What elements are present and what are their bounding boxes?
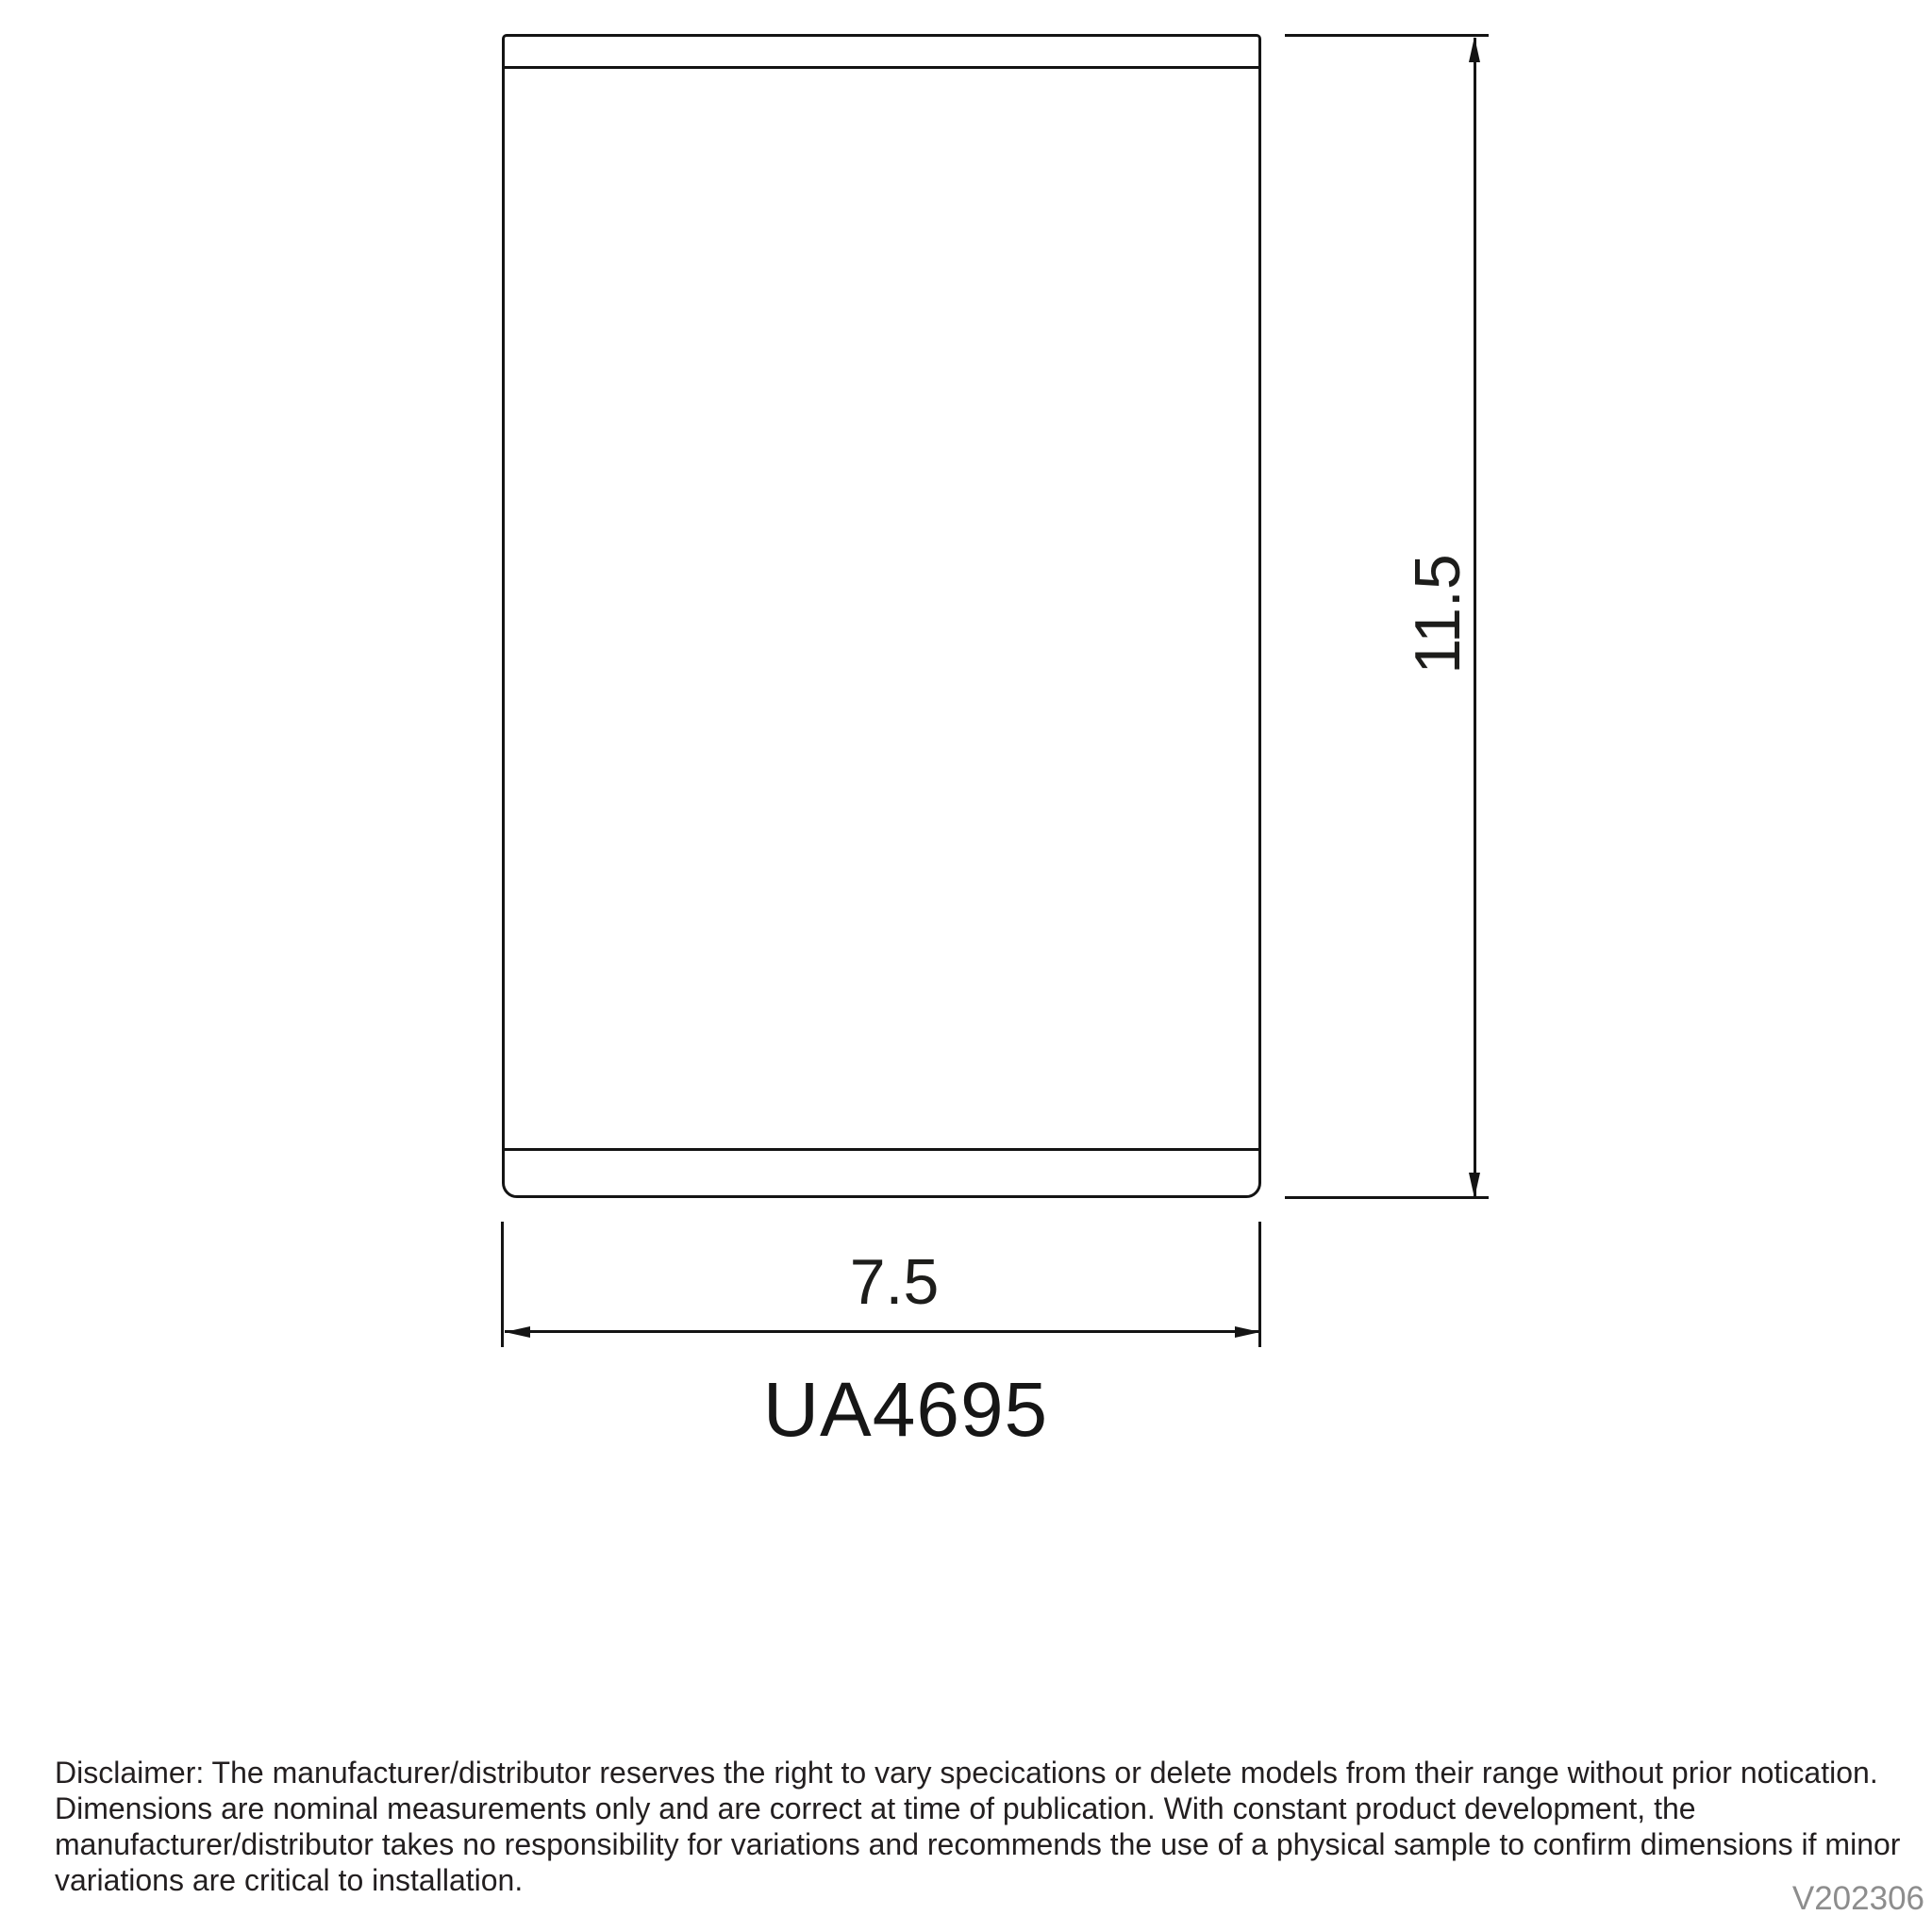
spec-sheet-page: 11.5 7.5 UA4695 Orıel LIGHTING Disclaime… (0, 0, 1932, 1932)
height-extension-line-top (1285, 34, 1489, 37)
product-outline-rect (502, 34, 1261, 1198)
disclaimer-line: variations are critical to installation. (55, 1862, 1900, 1898)
bottom-band-line (505, 1148, 1258, 1151)
product-code: UA4695 (763, 1366, 1048, 1455)
width-dimension-label: 7.5 (850, 1245, 940, 1319)
arrow-right-icon (1235, 1326, 1260, 1338)
disclaimer-line: Disclaimer: The manufacturer/distributor… (55, 1755, 1900, 1790)
disclaimer-line: manufacturer/distributor takes no respon… (55, 1826, 1900, 1862)
version-label: V202306 (1698, 1880, 1924, 1918)
top-band-line (505, 66, 1258, 69)
arrow-up-icon (1469, 37, 1480, 62)
height-extension-line-bottom (1285, 1196, 1489, 1199)
arrow-left-icon (505, 1326, 530, 1338)
oriel-logo: Orıel LIGHTING (0, 1509, 434, 1726)
height-dimension-label: 11.5 (1401, 554, 1474, 674)
disclaimer-line: Dimensions are nominal measurements only… (55, 1790, 1900, 1826)
width-dimension-line (505, 1330, 1260, 1333)
width-extension-line-left (501, 1222, 504, 1347)
arrow-down-icon (1469, 1173, 1480, 1198)
disclaimer-text: Disclaimer: The manufacturer/distributor… (55, 1755, 1900, 1898)
